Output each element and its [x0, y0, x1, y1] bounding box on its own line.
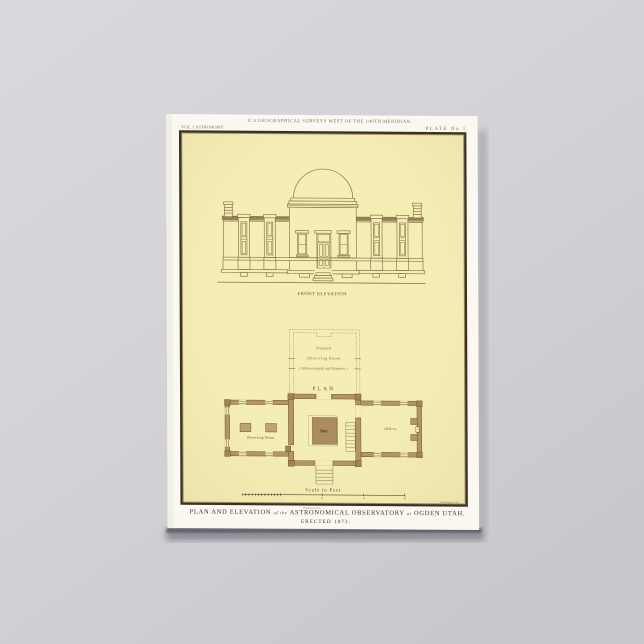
svg-text:PLAN: PLAN: [312, 386, 335, 392]
svg-text:Offices: Offices: [384, 427, 397, 431]
svg-text:FRONT ELEVATION: FRONT ELEVATION: [298, 292, 348, 297]
svg-text:Pier: Pier: [320, 428, 328, 433]
svg-text:PLATE No 1.: PLATE No 1.: [426, 127, 470, 132]
svg-text:( Meteorological and Magnetic: ( Meteorological and Magnetic ): [299, 366, 348, 370]
svg-text:Chr.Bierman, Del.: Chr.Bierman, Del.: [440, 501, 460, 504]
svg-text:Observing Room: Observing Room: [247, 435, 275, 439]
svg-text:Observing Room: Observing Room: [307, 355, 341, 360]
svg-text:Proposed: Proposed: [315, 346, 331, 350]
svg-text:ERECTED 1873.: ERECTED 1873.: [301, 519, 351, 525]
svg-text:Scale in Feet: Scale in Feet: [305, 488, 341, 493]
svg-text:VOL. I ASTRONOMY: VOL. I ASTRONOMY: [181, 124, 225, 129]
